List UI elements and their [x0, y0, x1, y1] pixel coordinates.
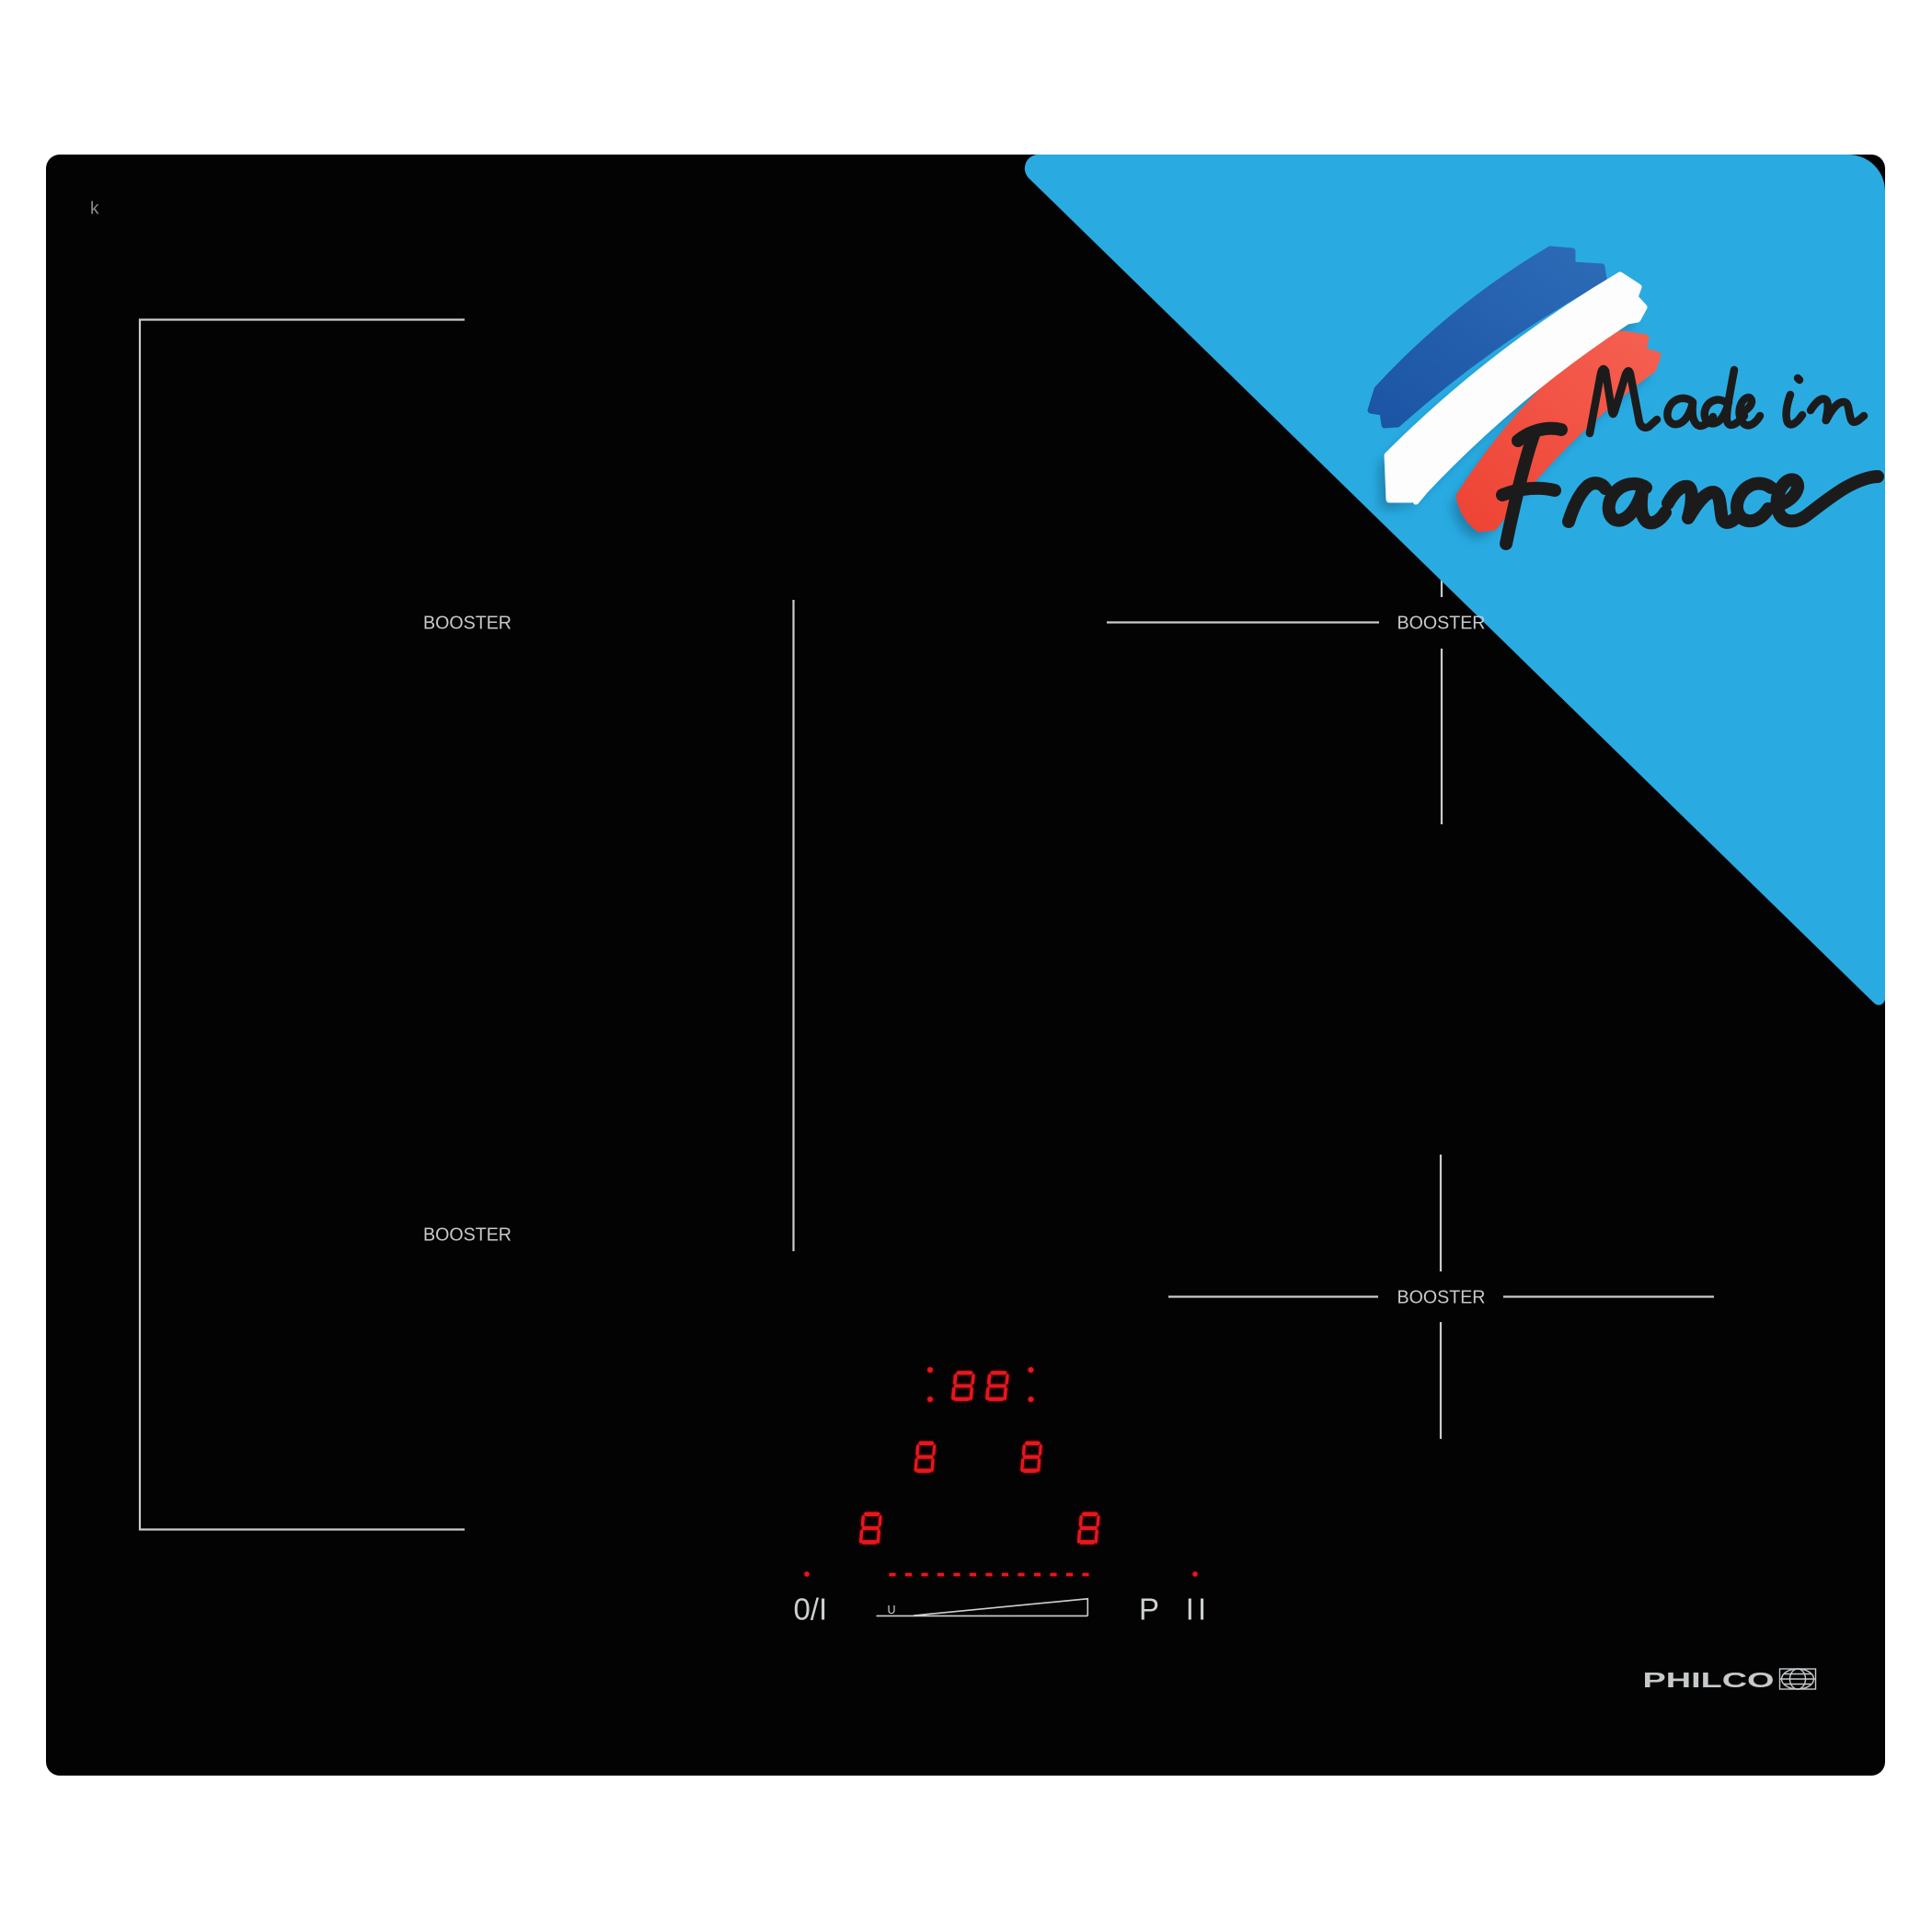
svg-text:BOOSTER: BOOSTER: [1397, 612, 1486, 633]
svg-text:II: II: [1186, 1593, 1211, 1627]
svg-text:BOOSTER: BOOSTER: [1397, 1286, 1486, 1307]
svg-text:PHILCO: PHILCO: [1643, 1668, 1775, 1692]
svg-text:U: U: [888, 1604, 896, 1616]
svg-text:k: k: [90, 200, 99, 219]
svg-text:BOOSTER: BOOSTER: [423, 1224, 512, 1245]
svg-text:0/I: 0/I: [794, 1593, 828, 1627]
svg-text:BOOSTER: BOOSTER: [423, 612, 512, 633]
svg-text:P: P: [1139, 1593, 1159, 1627]
